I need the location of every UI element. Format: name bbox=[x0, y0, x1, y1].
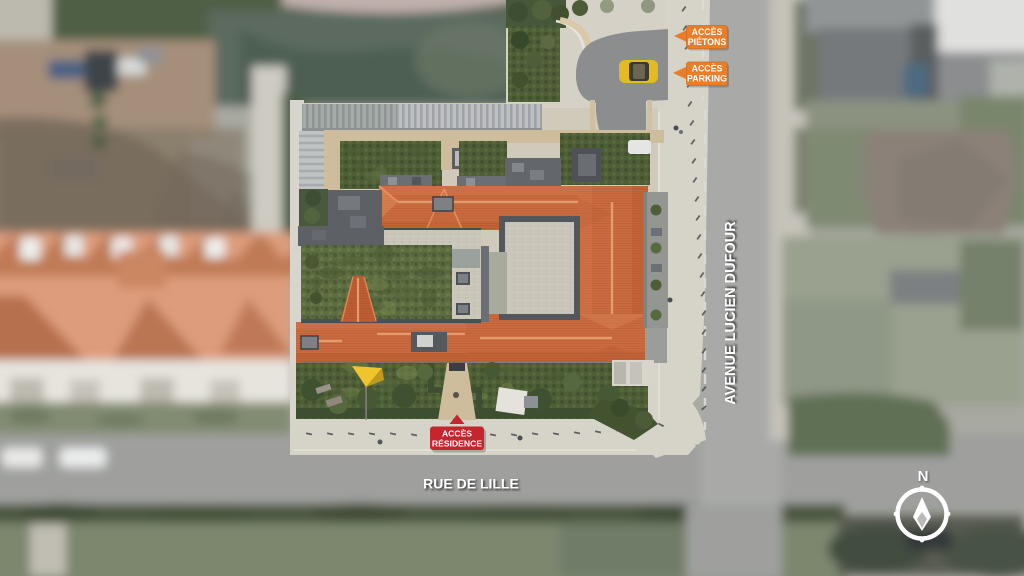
svg-text:N: N bbox=[918, 468, 929, 485]
svg-text:PARKING: PARKING bbox=[687, 74, 727, 84]
svg-text:AVENUE LUCIEN DUFOUR: AVENUE LUCIEN DUFOUR bbox=[723, 221, 739, 405]
svg-text:RÉSIDENCE: RÉSIDENCE bbox=[432, 439, 482, 449]
svg-text:ACCÈS: ACCÈS bbox=[692, 27, 723, 37]
svg-text:RUE DE LILLE: RUE DE LILLE bbox=[423, 476, 519, 492]
svg-text:PIÉTONS: PIÉTONS bbox=[688, 37, 727, 47]
svg-text:ACCÈS: ACCÈS bbox=[692, 64, 723, 74]
svg-text:ACCÈS: ACCÈS bbox=[442, 429, 472, 439]
